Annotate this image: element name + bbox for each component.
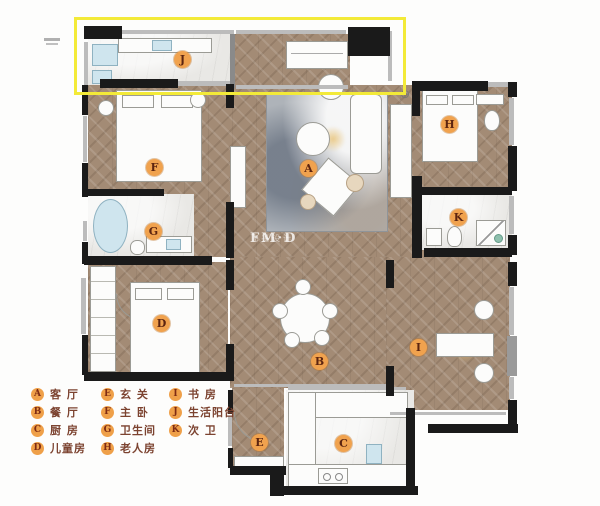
legend-key: I: [169, 388, 182, 401]
pillow: [135, 288, 162, 300]
window-segment: [509, 287, 514, 335]
window-segment: [509, 98, 514, 145]
legend-label: 玄 关: [120, 388, 149, 401]
sofa: [350, 94, 382, 174]
legend: A 客 厅 B 餐 厅 C 厨 房 D 儿童房 E 玄 关 F: [31, 385, 246, 461]
side-stool: [300, 194, 316, 210]
legend-label: 书 房: [188, 388, 217, 401]
pillow: [122, 95, 154, 108]
wall-segment: [226, 202, 234, 258]
room-label-dining: B: [311, 353, 328, 370]
wall-segment: [226, 260, 234, 290]
stove: [318, 468, 348, 484]
room-label-entry: E: [251, 434, 268, 451]
wall-segment: [412, 90, 420, 116]
window-segment: [509, 377, 514, 399]
pillow: [452, 95, 474, 105]
legend-item: A 客 厅: [31, 385, 103, 403]
bath-sink: [476, 94, 504, 105]
legend-item: D 儿童房: [31, 439, 103, 457]
wall-segment: [418, 187, 512, 195]
tv-cabinet: [230, 146, 246, 208]
room-label-master: F: [146, 159, 163, 176]
wall-segment: [86, 189, 164, 196]
bath-sink: [166, 239, 181, 250]
legend-key: A: [31, 388, 44, 401]
legend-item: E 玄 关: [101, 385, 173, 403]
toilet: [447, 226, 462, 247]
sliding-door-handle: [507, 336, 517, 376]
dining-chair: [322, 303, 338, 319]
window-segment: [488, 82, 510, 87]
wall-segment: [82, 335, 88, 375]
legend-label: 儿童房: [50, 442, 86, 455]
wall-segment: [386, 366, 394, 396]
legend-item: J 生活阳台: [169, 403, 241, 421]
legend-column-3: I 书 房 J 生活阳台 K 次 卫: [169, 385, 241, 439]
dining-chair: [284, 332, 300, 348]
legend-label: 客 厅: [50, 388, 79, 401]
wall-segment: [508, 146, 517, 191]
wall-segment: [508, 235, 517, 255]
legend-item: F 主 卧: [101, 403, 173, 421]
legend-key: C: [31, 424, 44, 437]
bath-sink: [426, 228, 442, 246]
wall-segment: [230, 466, 286, 475]
room-label-elderly: H: [441, 116, 458, 133]
wall-segment: [412, 81, 488, 91]
legend-key: G: [101, 424, 114, 437]
legend-column-2: E 玄 关 F 主 卧 G 卫生间 H 老人房: [101, 385, 173, 457]
desk-chair: [474, 363, 494, 383]
legend-label: 卫生间: [120, 424, 156, 437]
wall-segment: [84, 256, 212, 265]
legend-column-1: A 客 厅 B 餐 厅 C 厨 房 D 儿童房: [31, 385, 103, 457]
room-label-study: I: [410, 339, 427, 356]
wall-segment: [386, 260, 394, 288]
kitchen-sink: [366, 444, 382, 464]
legend-key: H: [101, 442, 114, 455]
room-label-kids: D: [153, 315, 170, 332]
armchair: [346, 174, 364, 192]
legend-key: J: [169, 406, 182, 419]
burner: [335, 473, 343, 481]
legend-label: 厨 房: [50, 424, 79, 437]
coffee-table: [296, 122, 330, 156]
wall-segment: [508, 400, 517, 433]
pillow: [426, 95, 448, 105]
legend-key: D: [31, 442, 44, 455]
legend-item: H 老人房: [101, 439, 173, 457]
legend-label: 次 卫: [188, 424, 217, 437]
window-segment: [81, 278, 86, 334]
dining-chair: [295, 279, 311, 295]
wall-segment: [428, 424, 518, 433]
room-label-secondbath: K: [450, 209, 467, 226]
toilet: [130, 240, 145, 255]
kitchen-counter-bottom: [288, 464, 408, 488]
shower-area: [476, 220, 506, 246]
legend-label: 老人房: [120, 442, 156, 455]
legend-item: C 厨 房: [31, 421, 103, 439]
kitchen-counter-left: [288, 392, 316, 470]
wall-segment: [424, 248, 512, 257]
legend-label: 餐 厅: [50, 406, 79, 419]
desk-chair: [474, 300, 494, 320]
legend-item: I 书 房: [169, 385, 241, 403]
wall-segment: [282, 486, 418, 495]
wardrobe: [90, 266, 116, 372]
legend-key: E: [101, 388, 114, 401]
legend-key: B: [31, 406, 44, 419]
legend-label: 主 卧: [120, 406, 149, 419]
window-segment: [83, 221, 87, 241]
highlight-box: [74, 17, 406, 95]
legend-item: B 餐 厅: [31, 403, 103, 421]
plant: [494, 234, 503, 243]
wall-segment: [84, 372, 234, 381]
legend-item: K 次 卫: [169, 421, 241, 439]
legend-label: 生活阳台: [188, 406, 236, 419]
toilet: [484, 110, 500, 131]
window-segment: [509, 196, 514, 234]
desk: [436, 333, 494, 357]
window-segment: [83, 116, 87, 162]
legend-item: G 卫生间: [101, 421, 173, 439]
dining-chair: [272, 303, 288, 319]
wall-segment: [406, 408, 415, 488]
room-label-bathroom: G: [145, 223, 162, 240]
legend-key: F: [101, 406, 114, 419]
wall-cabinet: [390, 104, 412, 198]
wall-segment: [508, 82, 517, 97]
pillow: [167, 288, 194, 300]
room-label-living: A: [300, 160, 317, 177]
dimension-marks: [46, 43, 58, 45]
wall-segment: [508, 262, 517, 286]
window-segment: [234, 384, 386, 387]
burner: [323, 473, 331, 481]
wall-segment: [82, 163, 88, 197]
wall-segment: [82, 242, 88, 264]
dining-chair: [314, 330, 330, 346]
pillow: [161, 95, 193, 108]
room-label-kitchen: C: [335, 435, 352, 452]
dimension-marks: [44, 38, 60, 41]
nightstand: [98, 100, 114, 116]
floor-plan: ⊕: [0, 0, 600, 506]
legend-key: K: [169, 424, 182, 437]
bathtub: [93, 199, 128, 253]
